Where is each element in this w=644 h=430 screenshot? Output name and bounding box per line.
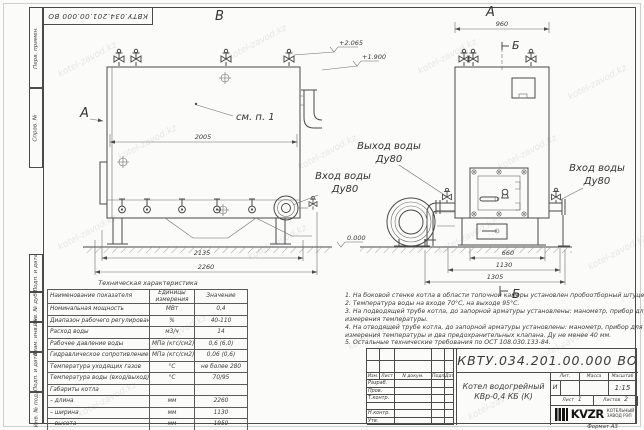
- top-designation: КВТУ.034.201.00.000 ВО: [48, 12, 148, 21]
- note-line: 3. На подводящей трубе котла, до запорно…: [345, 308, 637, 316]
- table-row: Температура уходящих газов°Сне более 280: [48, 361, 248, 373]
- table-row: – длинамм2260: [48, 396, 248, 408]
- tech-characteristics: Техническая характеристика Наименование …: [47, 279, 249, 430]
- company-logo: KVZR КОТЕЛЬНЫЙ ЗАВОД РЭП: [551, 404, 638, 424]
- sheet-value: 1: [578, 396, 582, 404]
- sheet-label: Лист: [562, 397, 574, 405]
- stamp-podp-data-2: Подп. и дата: [29, 352, 43, 392]
- note-line: 5. Остальные технические требования по О…: [345, 339, 637, 347]
- note-line: 4. На отводящей трубе котла, до запорной…: [345, 324, 637, 332]
- signature-rows: Разраб. Пров. Т.контр. Н.контр. Утв.: [367, 380, 456, 425]
- table-row: Диапазон рабочего регулирования%40-110: [48, 315, 248, 327]
- table-row: – высотамм1950: [48, 419, 248, 430]
- logo-name: KVZR: [571, 407, 604, 421]
- tech-table-title: Техническая характеристика: [47, 279, 249, 287]
- column-headers: Изм. Лист N докум. Подп. Дата: [367, 373, 456, 380]
- designation: КВТУ.034.201.00.000 ВО: [456, 349, 638, 373]
- lit-value: И: [551, 380, 561, 395]
- top-designation-box: КВТУ.034.201.00.000 ВО: [43, 7, 153, 25]
- note-line: 2. Температура воды на входе 70°С, на вы…: [345, 300, 637, 308]
- drawing-sheet: kotel-zavod.kz kotel-zavod.kz kotel-zavo…: [0, 0, 644, 430]
- table-row: Рабочее давление водыМПа (кгс/см2)0,6 (6…: [48, 338, 248, 350]
- stamp-vzam-inv: Взам. инв. №: [29, 322, 43, 352]
- title-block: КВТУ.034.201.00.000 ВО Изм. Лист N докум…: [366, 348, 637, 424]
- revision-grid: [367, 349, 456, 373]
- mass-value: [580, 380, 609, 396]
- table-row: Номинальная мощностьМВт0,4: [48, 304, 248, 316]
- stamp-sprav-no: Справ. №: [29, 88, 43, 168]
- tech-table: Наименование показателя Единицы измерени…: [47, 289, 248, 430]
- format-label: Формат А3: [568, 424, 637, 430]
- stamp-podp-data-1: Подп. и дата: [29, 254, 43, 292]
- table-row: Температура воды (вход/выход)°С70/95: [48, 373, 248, 385]
- table-row: Габариты котла: [48, 384, 248, 396]
- note-line: измерения температуры.: [345, 316, 637, 324]
- title-block-right: Лит. Масса Масштаб И 1:15 Лист1 Листов2 …: [551, 373, 638, 425]
- stamp-perv-primen: Перв. примен.: [29, 7, 43, 88]
- scale-value: 1:15: [609, 380, 637, 396]
- note-line: 1. На боковой стенке котла в области топ…: [345, 292, 637, 300]
- sheets-label: Листов: [603, 397, 620, 405]
- table-row: Расход водым3/ч14: [48, 327, 248, 339]
- table-row: Гидравлическое сопротивление котлаМПа (к…: [48, 350, 248, 362]
- stamp-inv-podl: Инв. № подл.: [29, 392, 43, 424]
- technical-notes: 1. На боковой стенке котла в области топ…: [345, 292, 637, 347]
- lit-cells: И: [551, 380, 580, 396]
- product-name: Котел водогрейный КВр-0,4 КБ (К): [456, 373, 551, 425]
- logo-mark-icon: [555, 408, 568, 421]
- table-header-row: Наименование показателя Единицы измерени…: [48, 290, 248, 304]
- table-row: – ширинамм1130: [48, 407, 248, 419]
- sheets-value: 2: [624, 396, 628, 404]
